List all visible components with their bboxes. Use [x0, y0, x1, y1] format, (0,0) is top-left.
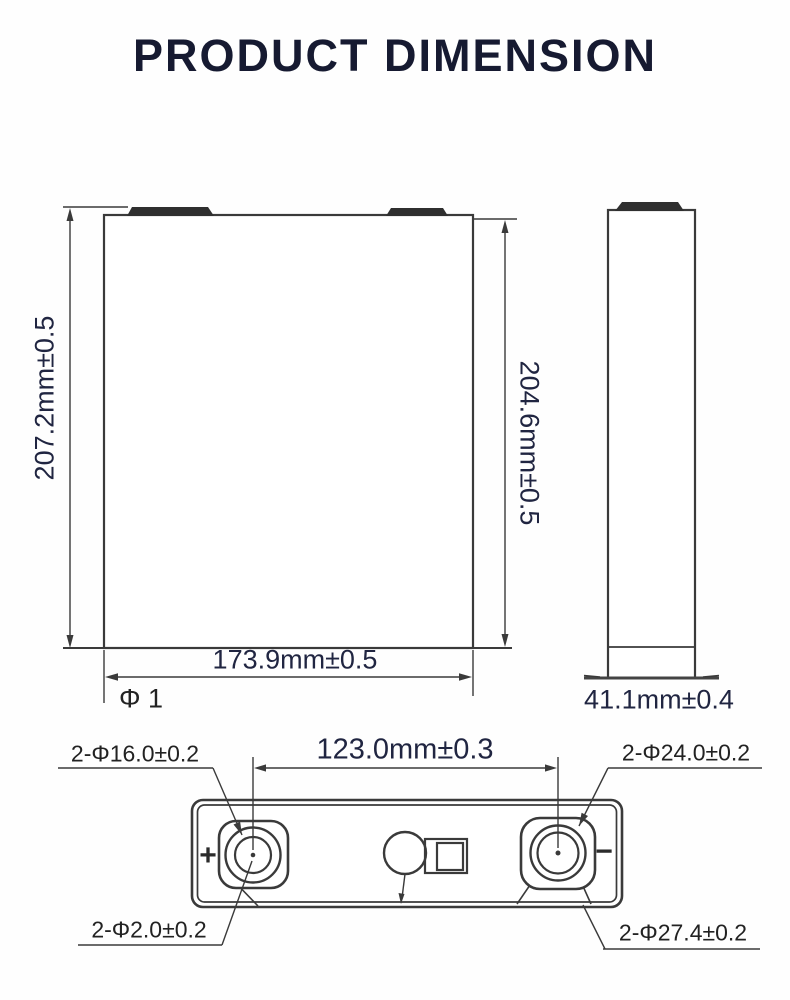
- side-view: [584, 202, 719, 678]
- front-width-dimension: 173.9mm±0.5: [213, 645, 378, 676]
- label-terminal-ring-diameter: 2-Φ24.0±0.2: [622, 740, 750, 767]
- arrow-width-left: [105, 673, 118, 681]
- negative-polarity-mark: −: [595, 835, 613, 869]
- arrow-down-right: [502, 634, 509, 647]
- front-height-body-dimension: 204.6mm±0.5: [514, 361, 545, 526]
- technical-drawing: [0, 0, 790, 1000]
- arrow-width-right: [459, 673, 472, 681]
- cell-side-outline: [608, 210, 695, 678]
- label-terminal-inner-diameter: 2-Φ16.0±0.2: [71, 741, 199, 768]
- negative-terminal-center: [556, 851, 561, 856]
- arrow-pitch-left: [254, 764, 266, 771]
- front-height-total-dimension: 207.2mm±0.5: [30, 316, 61, 481]
- positive-polarity-mark: +: [199, 839, 217, 873]
- positive-terminal-center: [251, 853, 256, 858]
- drawing-page: PRODUCT DIMENSION 207.2mm±0.5 204.6mm±0.…: [0, 0, 790, 1000]
- leader-bottom-right: [583, 905, 605, 949]
- front-view: [63, 207, 517, 703]
- side-terminal-bump: [615, 202, 684, 211]
- label-terminal-outer-diameter: 2-Φ27.4±0.2: [619, 920, 747, 947]
- front-terminal-bump-right: [386, 208, 448, 216]
- front-terminal-bump-left: [127, 207, 214, 216]
- page-title: PRODUCT DIMENSION: [133, 30, 657, 82]
- terminal-pitch-dimension: 123.0mm±0.3: [316, 734, 493, 767]
- arrow-pitch-right: [545, 764, 557, 771]
- arrow-up-right: [502, 220, 509, 233]
- label-center-hole-diameter: 2-Φ2.0±0.2: [91, 917, 206, 944]
- arrow-up-left: [67, 208, 74, 221]
- side-thickness-dimension: 41.1mm±0.4: [584, 685, 734, 716]
- front-corner-note: Φ 1: [119, 684, 163, 715]
- cell-front-outline: [104, 215, 473, 648]
- arrow-down-left: [67, 635, 74, 648]
